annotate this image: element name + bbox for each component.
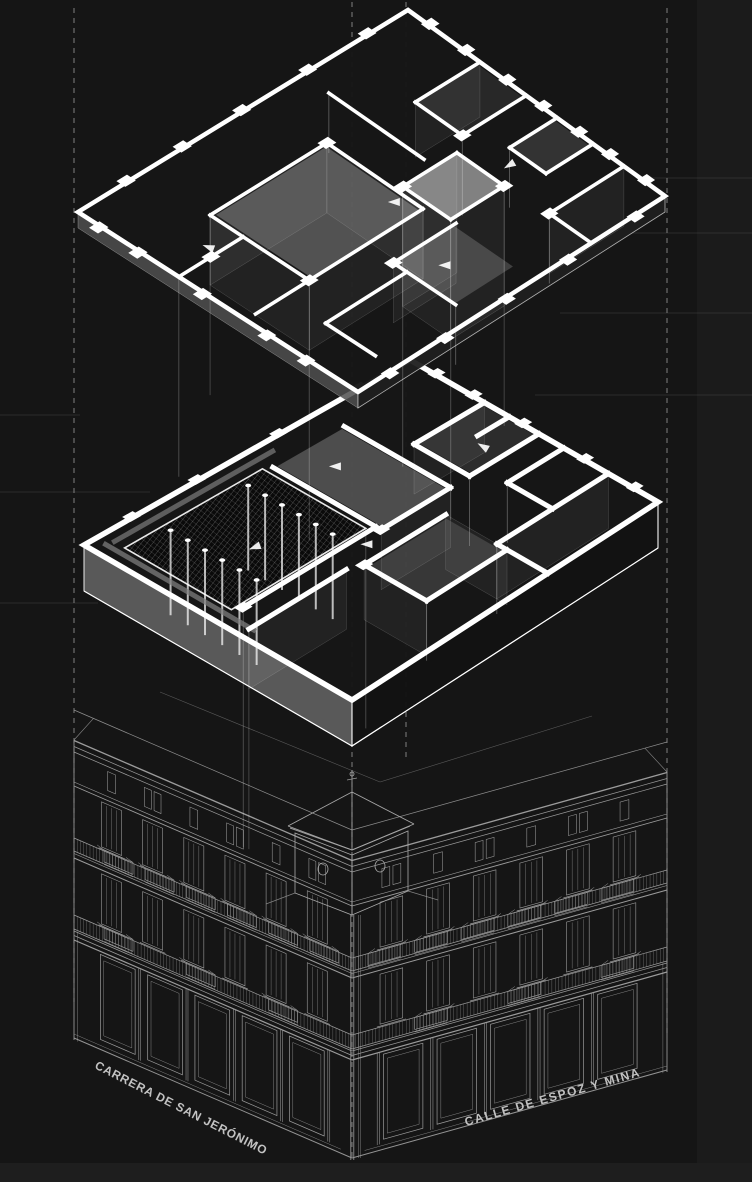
axonometric-drawing: CARRERA DE SAN JERÓNIMO CALLE DE ESPOZ Y… [0,0,752,1182]
drawing-canvas: CARRERA DE SAN JERÓNIMO CALLE DE ESPOZ Y… [0,0,752,1182]
